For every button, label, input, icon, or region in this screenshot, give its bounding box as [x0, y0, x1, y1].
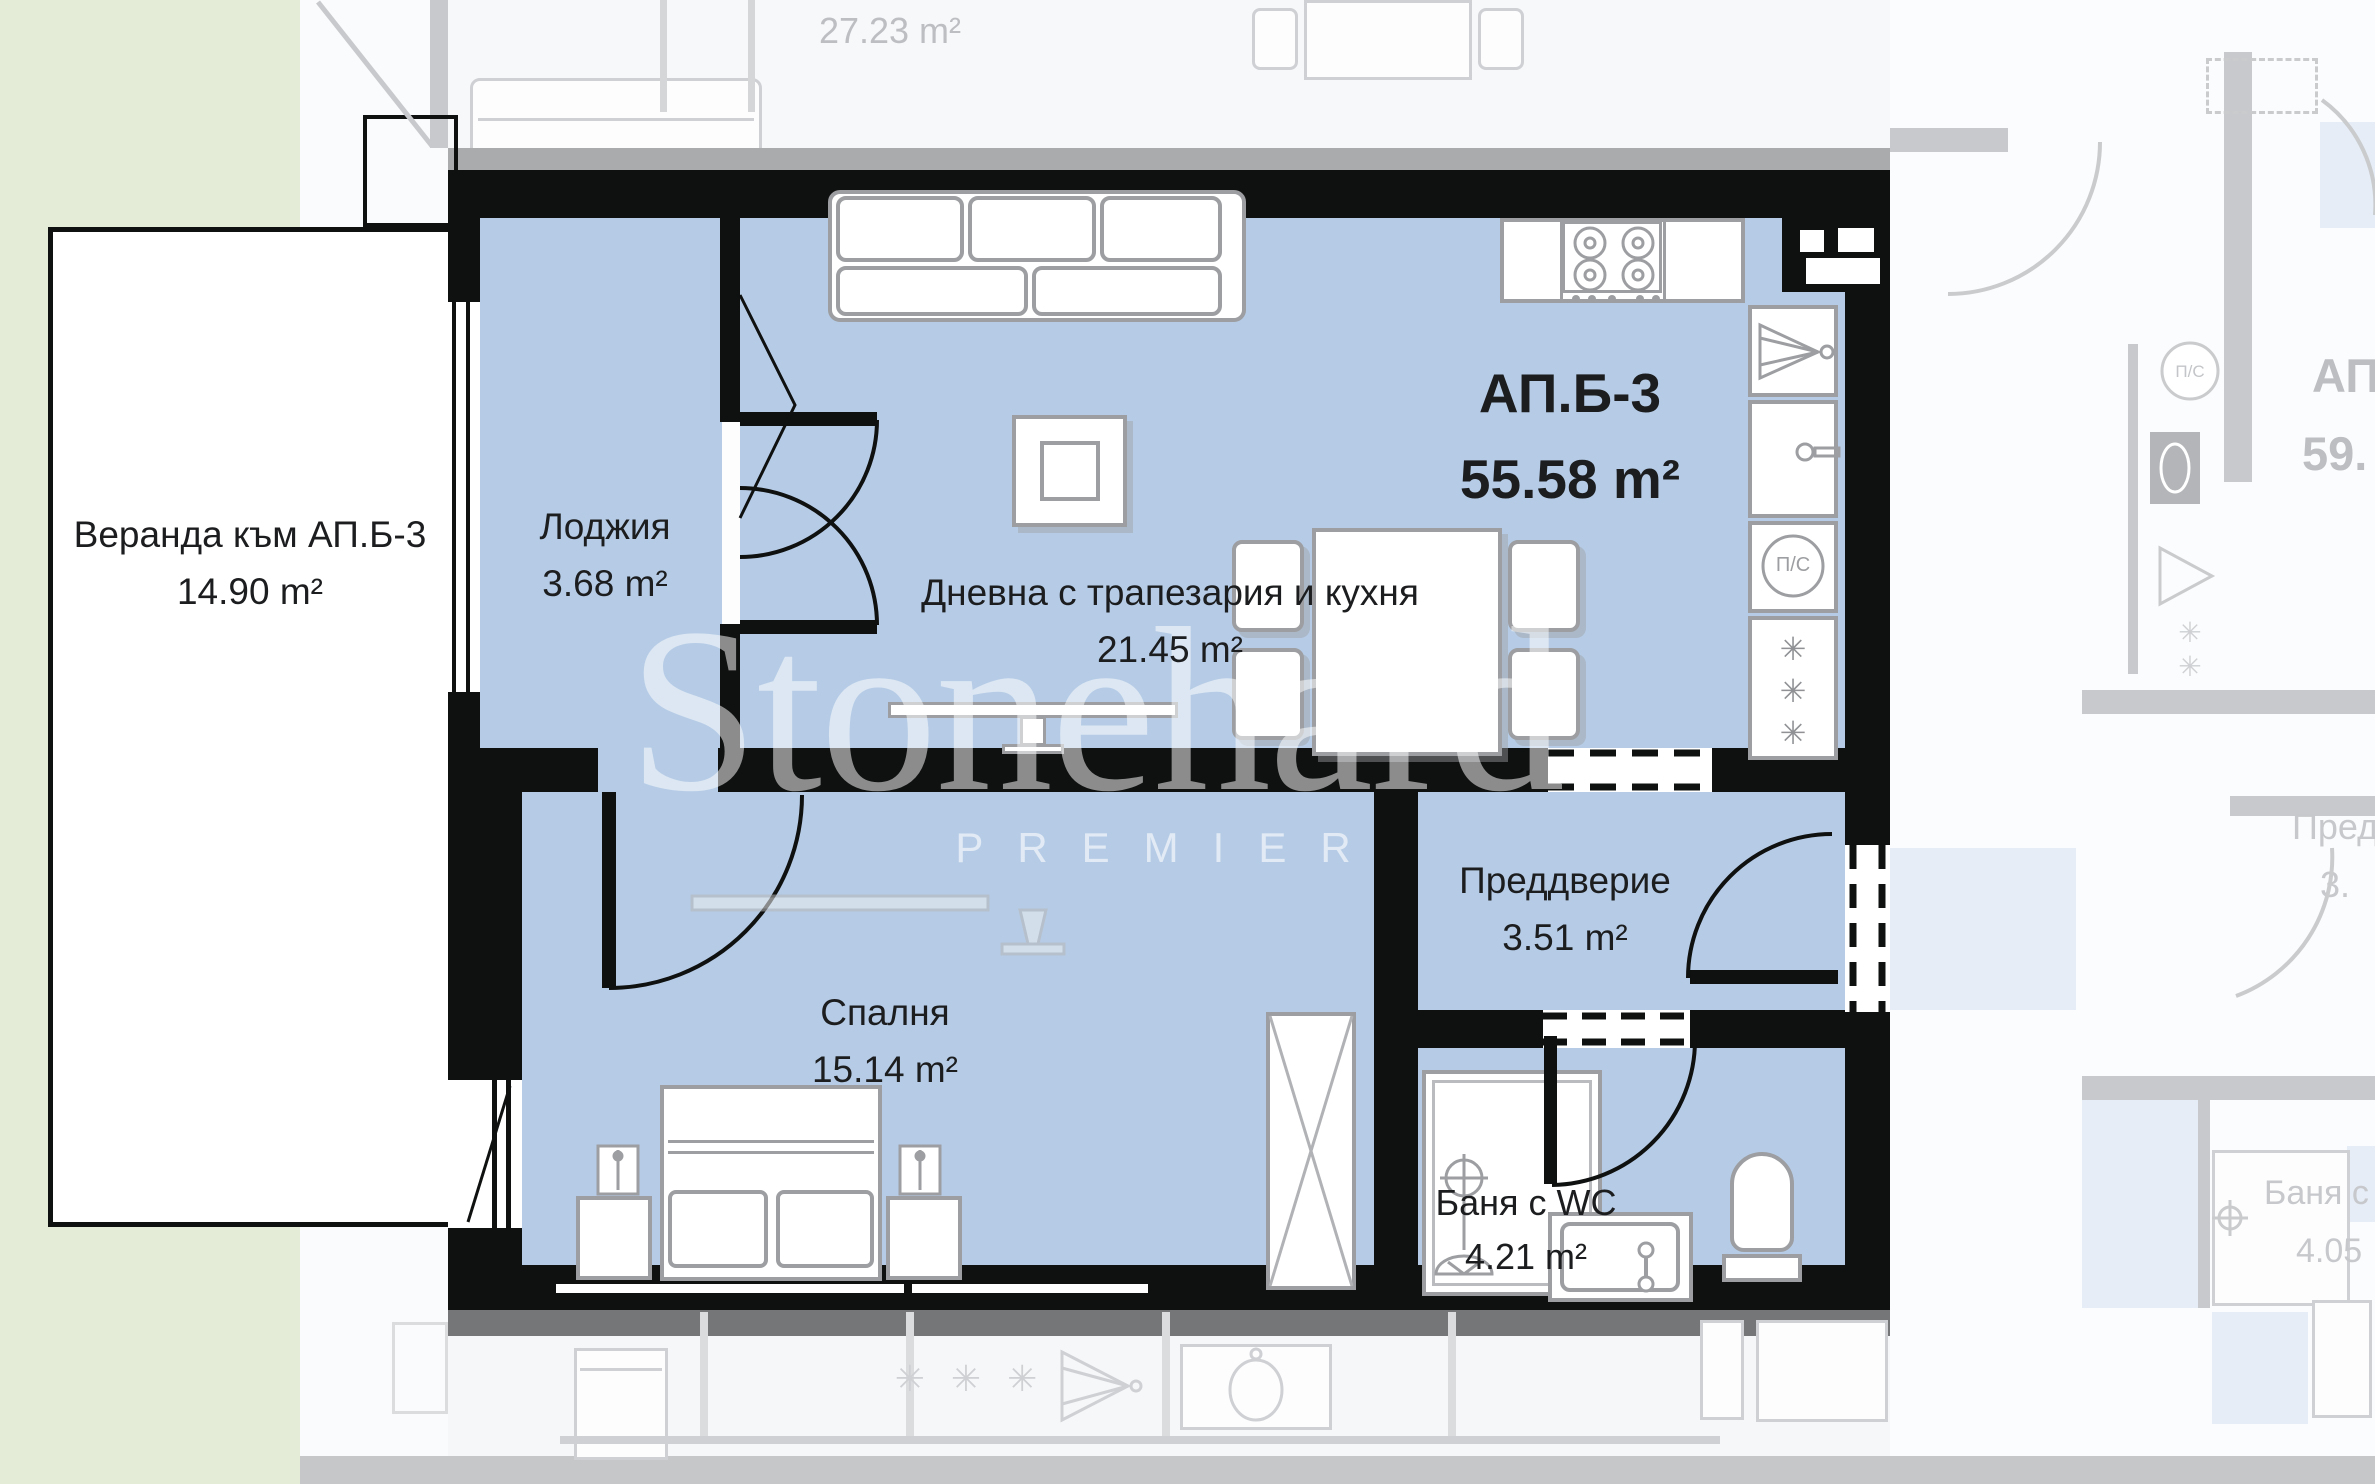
living-name: Дневна с трапезария и кухня	[860, 564, 1480, 621]
bedroom-area: 15.14 m²	[735, 1041, 1035, 1098]
washer-label: П/С	[1763, 554, 1823, 577]
bedroom-name: Спалня	[735, 984, 1035, 1041]
kitchen-funnel-icon	[1760, 325, 1833, 378]
doors-and-icons-layer	[0, 0, 2375, 1484]
stove-burner	[1575, 228, 1653, 290]
bath-door-arc	[1552, 1040, 1695, 1185]
veranda-name: Веранда към АП.Б-3	[50, 506, 450, 563]
neighbor-shower-cross-icon	[2212, 1200, 2248, 1236]
loggia-door-leaf	[740, 412, 877, 426]
bedroom-tv-faded	[692, 896, 1064, 954]
veranda-area-value: 14.90 m²	[50, 563, 450, 620]
lower-hood-icon	[1062, 1352, 1141, 1420]
loggia-label: Лоджия 3.68 m²	[480, 498, 730, 612]
bath-area: 4.21 m²	[1390, 1230, 1662, 1284]
bedroom-door-leaf	[602, 792, 616, 988]
hall-area: 3.51 m²	[1405, 909, 1725, 966]
lower-sink-icon	[1230, 1349, 1282, 1420]
bedroom-door-arc	[609, 795, 802, 988]
bedroom-label: Спалня 15.14 m²	[735, 984, 1035, 1098]
bedroom-window-sash	[468, 1086, 510, 1222]
apartment-area: 55.58 m²	[1400, 436, 1740, 522]
loggia-window-sash	[740, 295, 795, 518]
lamp-icon	[598, 1146, 940, 1194]
loggia-area: 3.68 m²	[480, 555, 730, 612]
living-area: 21.45 m²	[860, 621, 1480, 678]
neighbor-sink-basin	[2161, 444, 2189, 492]
bath-label: Баня с WC 4.21 m²	[1390, 1176, 1662, 1284]
neighbor-funnel-icon	[2160, 548, 2212, 604]
loggia-door-leaf	[740, 620, 877, 634]
bath-name: Баня с WC	[1390, 1176, 1662, 1230]
veranda-label: Веранда към АП.Б-3 14.90 m²	[50, 506, 450, 620]
neighbor-washer-label: П/С	[2160, 362, 2220, 382]
wardrobe-cross	[1270, 1016, 1352, 1286]
stove-knobs	[1572, 295, 1660, 303]
floor-plan-canvas: 27.23 m² Веранда към АП.Б-3 14.90 m²	[0, 0, 2375, 1484]
bath-door-leaf	[1544, 1036, 1557, 1184]
apartment-name: АП.Б-3	[1400, 350, 1740, 436]
living-label: Дневна с трапезария и кухня 21.45 m²	[860, 564, 1480, 678]
left-strip-diagonal	[318, 2, 432, 146]
appliance-door-handle	[1797, 444, 1839, 460]
apartment-label: АП.Б-3 55.58 m²	[1400, 350, 1740, 522]
entrance-door-leaf	[1690, 970, 1838, 984]
hall-name: Преддверие	[1405, 852, 1725, 909]
hall-label: Преддверие 3.51 m²	[1405, 852, 1725, 966]
loggia-name: Лоджия	[480, 498, 730, 555]
